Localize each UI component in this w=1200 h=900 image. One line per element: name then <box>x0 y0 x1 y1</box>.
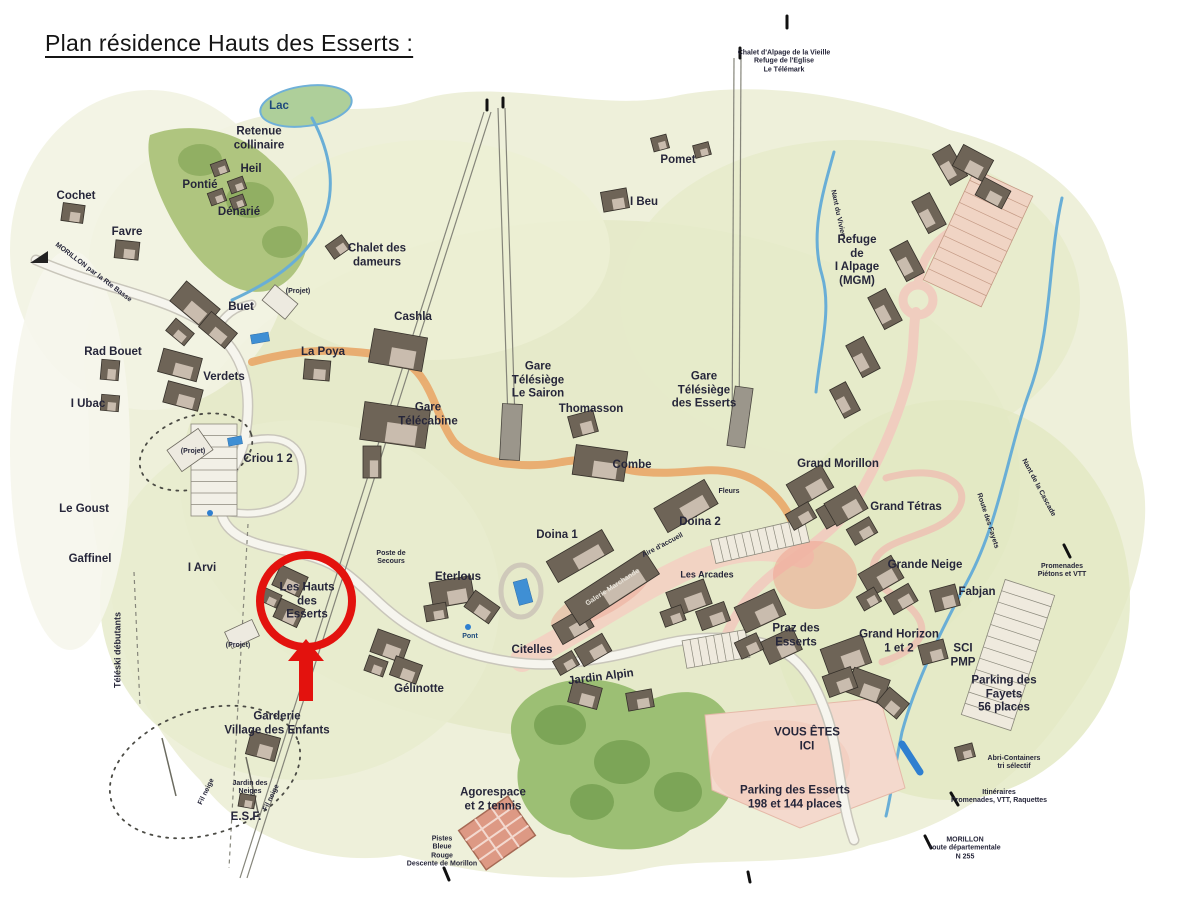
map-label: Fil neige <box>197 777 217 806</box>
map-label: I Ubac <box>71 398 106 412</box>
map-label: Pont <box>462 633 478 641</box>
map-label: Lac <box>269 100 289 114</box>
map-label: Verdets <box>203 371 245 385</box>
map-label: Gare Télésiège Le Sairon <box>512 361 564 402</box>
map-label: Le Goust <box>59 503 109 517</box>
map-label: Poste de Secours <box>376 550 405 567</box>
map-label: MORILLON route départementale N 255 <box>929 837 1000 862</box>
map-label: Route des Fayets <box>974 492 1000 550</box>
map-label: Gare Télécabine <box>398 401 457 428</box>
map-label: Chalet des dameurs <box>348 242 406 269</box>
map-label: Criou 1 2 <box>243 453 292 467</box>
map-label: Grand Tétras <box>870 501 942 515</box>
map-label: Nant de la Cascade <box>1019 458 1056 519</box>
map-label: E.S.F. <box>231 811 262 825</box>
map-label: VOUS ÊTES ICI <box>774 726 840 753</box>
map-label: Fil neige <box>262 783 282 812</box>
map-label: Parking des Esserts 198 et 144 places <box>740 784 850 811</box>
map-label: Les Hauts des Esserts <box>280 582 335 623</box>
map-label: Grande Neige <box>888 559 963 573</box>
map-label: Dénarié <box>218 206 260 220</box>
map-label: Les Arcades <box>680 570 733 581</box>
map-label: (Projet) <box>286 288 311 296</box>
map-label: Gare Télésiège des Esserts <box>672 371 737 412</box>
map-label: Aire d'accueil <box>641 532 685 561</box>
map-label: (Projet) <box>181 448 206 456</box>
map-label: Doina 1 <box>536 529 578 543</box>
map-label: Buet <box>228 301 254 315</box>
map-label: Téléski débutants <box>113 612 124 688</box>
map-label: La Poya <box>301 346 345 360</box>
map-label: Promenades Piétons et VTT <box>1038 563 1087 580</box>
map-label: Cochet <box>57 190 96 204</box>
map-label: Refuge de I Alpage (MGM) <box>835 234 879 288</box>
map-label: Grand Morillon <box>797 458 879 472</box>
map-label: Gaffinel <box>69 553 112 567</box>
map-label: Itinéraires Promenades, VTT, Raquettes <box>951 789 1047 806</box>
map-label: Citelles <box>512 644 553 658</box>
map-label: Chalet d'Alpage de la Vieille Refuge de … <box>738 50 831 75</box>
map-label: Parking des Fayets 56 places <box>971 675 1036 716</box>
map-label-layer: LacRetenue collinaireHeilPontiéDénariéCo… <box>0 0 1200 900</box>
map-label: I Beu <box>630 196 658 210</box>
map-label: Pistes Bleue Rouge Descente de Morillon <box>407 836 477 869</box>
map-label: Jardin Alpin <box>567 667 634 689</box>
map-label: SCI PMP <box>951 642 976 669</box>
map-label: Praz des Esserts <box>772 622 819 649</box>
map-page: Plan résidence Hauts des Esserts : LacRe… <box>0 0 1200 900</box>
map-label: Retenue collinaire <box>234 125 285 152</box>
map-label: Eterlous <box>435 571 481 585</box>
map-label: I Arvi <box>188 562 216 576</box>
map-label: Combe <box>613 459 652 473</box>
map-label: MORILLON par la Rte Basse <box>53 241 133 304</box>
map-label: Abri-Containers tri sélectif <box>988 755 1041 772</box>
map-label: Nant du Vivier <box>828 189 846 237</box>
map-label: (Projet) <box>226 642 251 650</box>
map-label: Garderie Village des Enfants <box>224 710 329 737</box>
map-label: Galerie Marchande <box>584 567 641 608</box>
map-label: Doina 2 <box>679 516 721 530</box>
map-label: Thomasson <box>559 403 624 417</box>
map-label: Fabjan <box>958 586 995 600</box>
map-label: Heil <box>240 163 261 177</box>
map-label: Favre <box>112 226 143 240</box>
map-label: Rad Bouet <box>84 346 142 360</box>
map-label: Pontié <box>182 179 217 193</box>
map-label: Pomet <box>660 154 695 168</box>
map-label: Cashla <box>394 311 432 325</box>
map-label: Gélinotte <box>394 683 444 697</box>
map-label: Agorespace et 2 tennis <box>460 786 526 813</box>
map-label: Fleurs <box>718 488 739 496</box>
map-label: Grand Horizon 1 et 2 <box>859 628 939 655</box>
map-label: Jardin des Neiges <box>232 780 267 797</box>
